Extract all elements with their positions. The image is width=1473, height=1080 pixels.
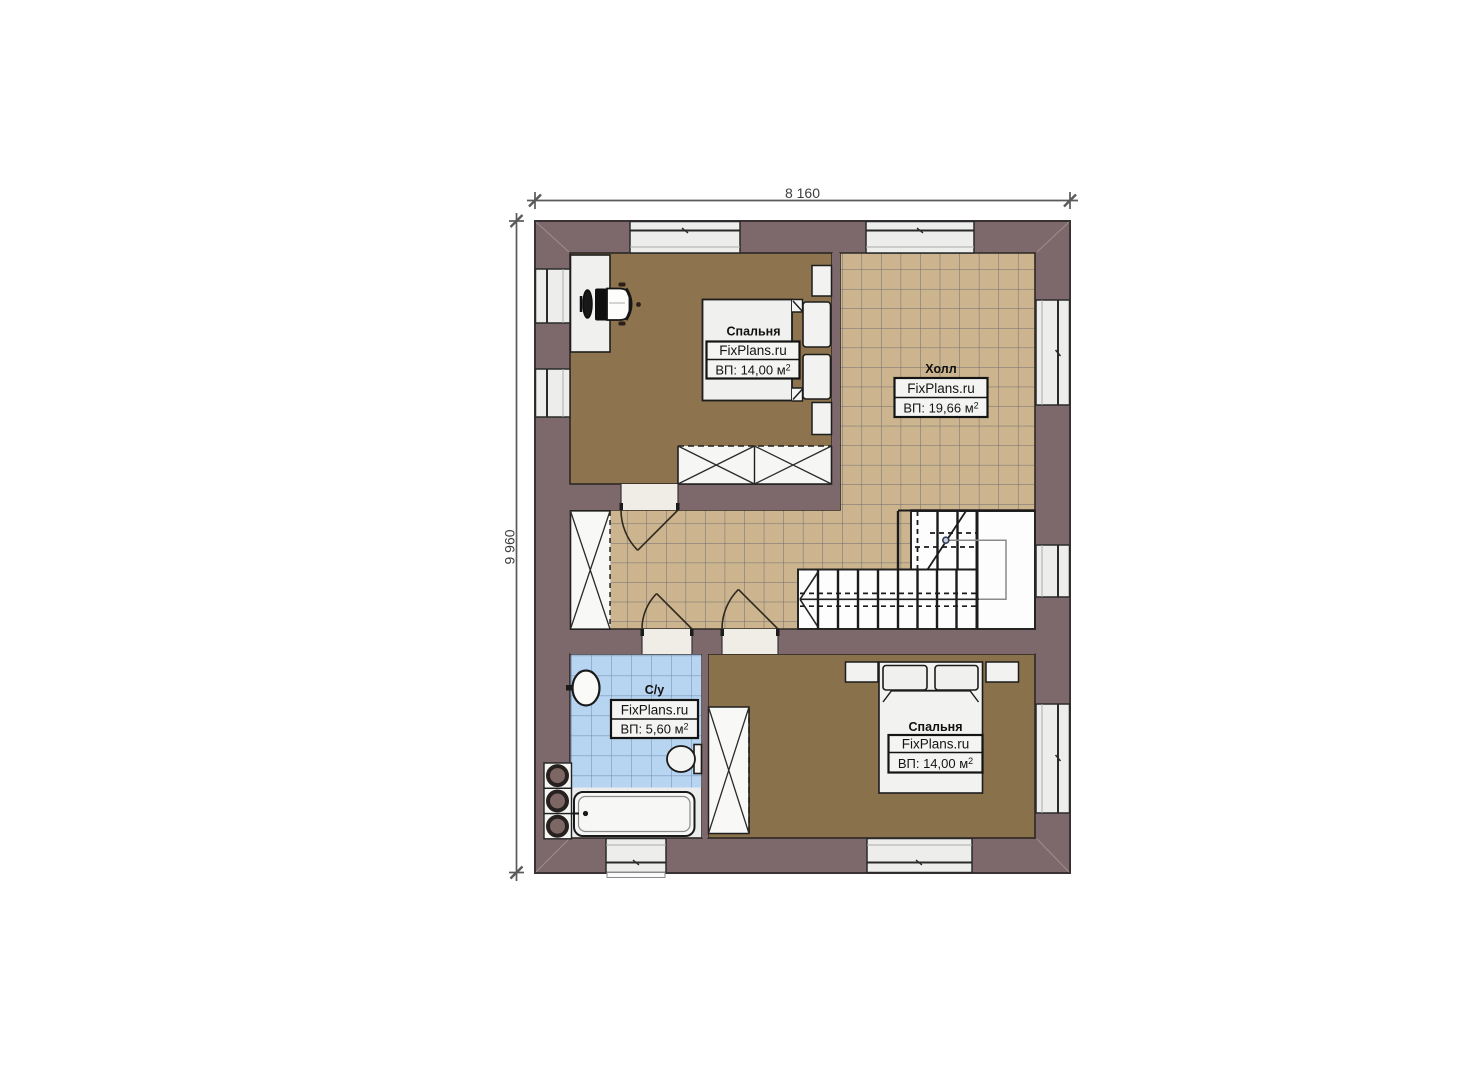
svg-text:FixPlans.ru: FixPlans.ru — [621, 703, 689, 718]
svg-text:FixPlans.ru: FixPlans.ru — [907, 381, 975, 396]
svg-text:Холл: Холл — [925, 362, 956, 376]
svg-text:Спальня: Спальня — [909, 720, 963, 734]
svg-text:9 960: 9 960 — [502, 529, 518, 564]
svg-text:ВП: 19,66 м2: ВП: 19,66 м2 — [903, 401, 978, 416]
svg-text:С/у: С/у — [645, 683, 665, 697]
svg-text:ВП: 14,00 м2: ВП: 14,00 м2 — [898, 756, 973, 771]
svg-text:FixPlans.ru: FixPlans.ru — [719, 343, 787, 358]
svg-text:FixPlans.ru: FixPlans.ru — [902, 737, 970, 752]
svg-text:ВП: 14,00 м2: ВП: 14,00 м2 — [715, 363, 790, 378]
svg-text:8 160: 8 160 — [785, 185, 820, 201]
svg-text:ВП: 5,60 м2: ВП: 5,60 м2 — [620, 722, 688, 737]
svg-text:Спальня: Спальня — [727, 325, 781, 339]
